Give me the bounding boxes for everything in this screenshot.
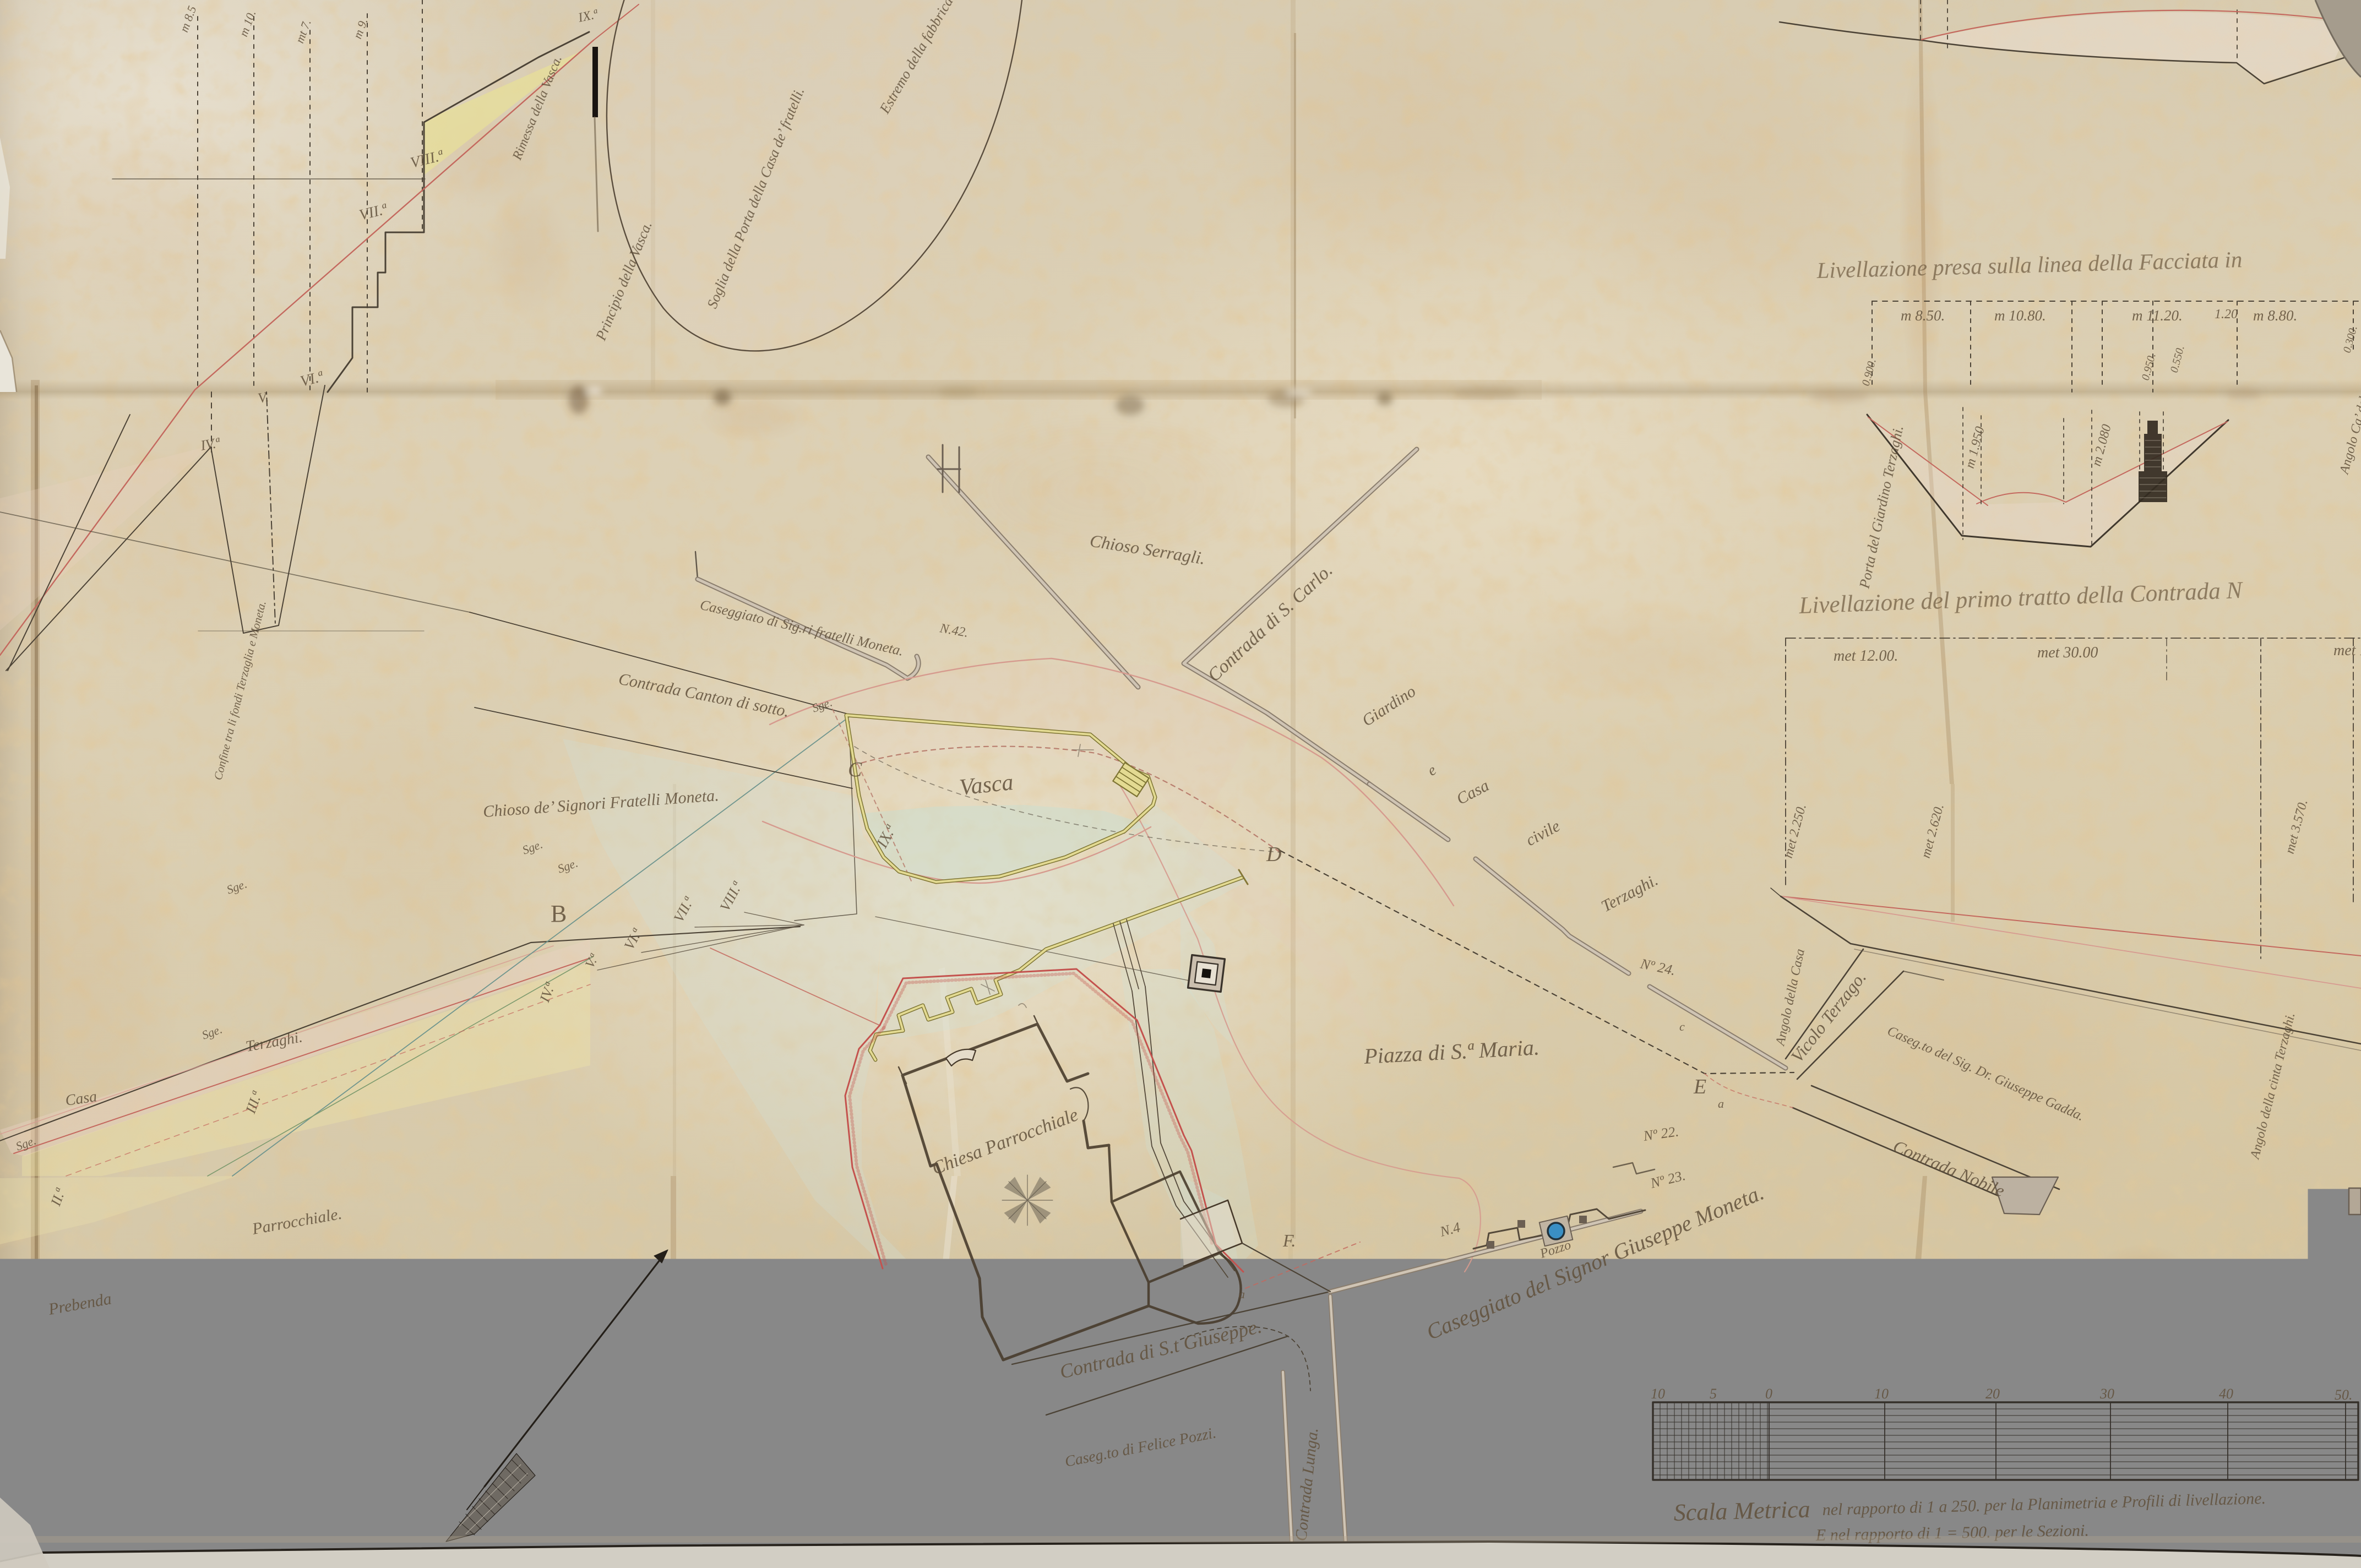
- svg-text:c: c: [1679, 1020, 1685, 1033]
- svg-text:50.: 50.: [2335, 1387, 2353, 1403]
- svg-text:40: 40: [2219, 1386, 2233, 1402]
- svg-text:a: a: [1718, 1097, 1724, 1110]
- svg-text:B: B: [551, 900, 567, 927]
- svg-text:m 10.80.: m 10.80.: [1994, 307, 2046, 324]
- svg-text:Scala Metrica: Scala Metrica: [1673, 1496, 1810, 1526]
- svg-text:1.20: 1.20: [2215, 307, 2238, 322]
- svg-text:a: a: [1239, 1287, 1245, 1301]
- svg-text:m 11.20.: m 11.20.: [2132, 307, 2183, 324]
- svg-text:0: 0: [1765, 1386, 1772, 1402]
- svg-text:10: 10: [1651, 1386, 1665, 1402]
- svg-text:met 30.00: met 30.00: [2037, 644, 2098, 661]
- svg-text:met 12.00.: met 12.00.: [1834, 647, 1898, 665]
- svg-text:20: 20: [1985, 1386, 2000, 1402]
- svg-text:m 8.80.: m 8.80.: [2253, 307, 2297, 324]
- svg-text:F.: F.: [1282, 1231, 1296, 1250]
- svg-text:30: 30: [2099, 1386, 2114, 1402]
- svg-text:10: 10: [1874, 1386, 1889, 1402]
- svg-text:E: E: [1693, 1075, 1706, 1098]
- svg-text:D: D: [1266, 843, 1281, 866]
- svg-text:C: C: [848, 758, 862, 781]
- svg-text:5: 5: [1710, 1386, 1717, 1402]
- svg-text:m 8.50.: m 8.50.: [1901, 307, 1945, 324]
- svg-text:met 11.: met 11.: [2333, 642, 2361, 659]
